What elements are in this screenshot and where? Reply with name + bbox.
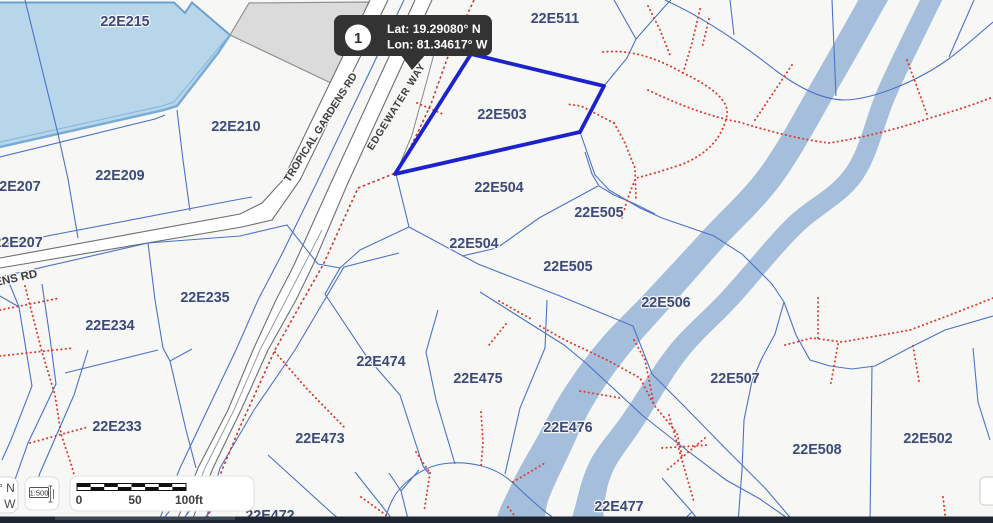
svg-text:22E508: 22E508 [792,442,841,458]
svg-text:22E504: 22E504 [474,180,523,196]
svg-text:22E502: 22E502 [903,431,952,447]
svg-text:22E233: 22E233 [92,419,141,435]
svg-text:22E473: 22E473 [295,431,344,447]
svg-text:22E474: 22E474 [356,354,405,370]
svg-text:22E511: 22E511 [531,11,580,27]
svg-text:22E210: 22E210 [211,119,260,135]
svg-text:° W: ° W [0,497,16,511]
svg-text:° N: ° N [0,481,15,495]
svg-text:22E477: 22E477 [594,499,643,515]
svg-text:22E505: 22E505 [543,259,592,275]
svg-text:22E475: 22E475 [453,371,502,387]
svg-text:22E507: 22E507 [710,371,759,387]
svg-text:22E506: 22E506 [641,295,690,311]
svg-text:22E476: 22E476 [543,420,592,436]
svg-text:22E234: 22E234 [85,318,134,334]
svg-text:22E209: 22E209 [95,168,144,184]
svg-text:22E505: 22E505 [574,205,623,221]
svg-text:50: 50 [128,493,142,507]
svg-text:Lat: 19.29080° N: Lat: 19.29080° N [387,22,481,36]
svg-text:Lon: 81.34617° W: Lon: 81.34617° W [387,38,488,52]
svg-text:1: 1 [354,30,362,47]
svg-text:100ft: 100ft [175,493,203,507]
svg-text:22E215: 22E215 [100,14,149,30]
svg-text:22E503: 22E503 [477,107,526,123]
svg-text:22E207: 22E207 [0,235,43,251]
svg-text:22E235: 22E235 [180,290,229,306]
svg-text:0: 0 [76,493,83,507]
svg-text:22E207: 22E207 [0,179,41,195]
svg-text:1:500: 1:500 [30,489,49,498]
svg-text:22E504: 22E504 [449,236,498,252]
